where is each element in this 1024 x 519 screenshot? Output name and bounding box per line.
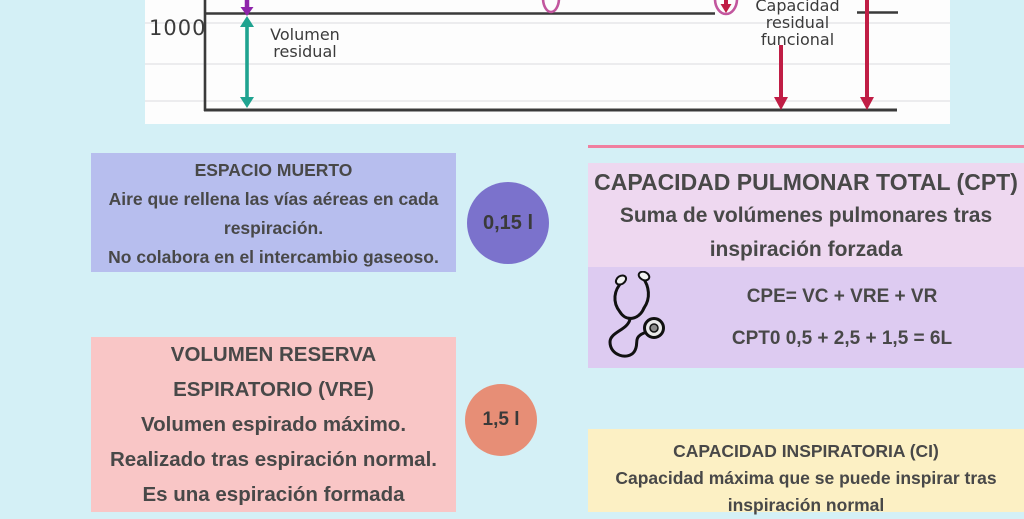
cpt-card-title-section: CAPACIDAD PULMONAR TOTAL (CPT) Suma de v… xyxy=(588,163,1024,267)
espacio-muerto-line3: No colabora en el intercambio gaseoso. xyxy=(91,243,456,272)
cpt-top-divider xyxy=(588,145,1024,148)
breath-loop-icon xyxy=(543,0,559,12)
volumen-residual-line1: Volumen xyxy=(255,26,355,43)
cpt-formula-symbolic: CPE= VC + VRE + VR xyxy=(680,286,1004,308)
vre-line2: Realizado tras espiración normal. xyxy=(91,442,456,477)
cpt-title: CAPACIDAD PULMONAR TOTAL (CPT) xyxy=(588,165,1024,199)
spirogram-panel: 1000 Volumen residual Capacidad residual… xyxy=(145,0,950,124)
cpt-formulas: CPE= VC + VRE + VR CPT0 0,5 + 2,5 + 1,5 … xyxy=(680,286,1024,350)
capacidad-line1: Capacidad xyxy=(730,0,865,14)
ci-title: CAPACIDAD INSPIRATORIA (CI) xyxy=(588,438,1024,465)
espacio-muerto-card: ESPACIO MUERTO Aire que rellena las vías… xyxy=(91,153,456,272)
ci-card: CAPACIDAD INSPIRATORIA (CI) Capacidad má… xyxy=(588,429,1024,512)
espacio-muerto-line2: respiración. xyxy=(91,214,456,243)
vre-title-line1: VOLUMEN RESERVA xyxy=(91,337,456,372)
vre-value-badge: 1,5 l xyxy=(465,384,537,456)
teal-double-arrow xyxy=(240,16,254,108)
ci-line2: inspiración normal xyxy=(588,492,1024,519)
cpt-card-formula-section: CPE= VC + VRE + VR CPT0 0,5 + 2,5 + 1,5 … xyxy=(588,267,1024,368)
espacio-muerto-title: ESPACIO MUERTO xyxy=(91,156,456,185)
vre-line3: Es una espiración formada xyxy=(91,477,456,512)
vre-card: VOLUMEN RESERVA ESPIRATORIO (VRE) Volume… xyxy=(91,337,456,512)
crimson-arrow-short xyxy=(774,45,788,110)
espacio-muerto-value-badge: 0,15 l xyxy=(467,182,549,264)
capacidad-residual-funcional-label: Capacidad residual funcional xyxy=(730,0,865,48)
vre-line1: Volumen espirado máximo. xyxy=(91,407,456,442)
ci-line1: Capacidad máxima que se puede inspirar t… xyxy=(588,465,1024,492)
vre-title-line2: ESPIRATORIO (VRE) xyxy=(91,372,456,407)
cpt-formula-numeric: CPT0 0,5 + 2,5 + 1,5 = 6L xyxy=(680,328,1004,350)
espacio-muerto-value: 0,15 l xyxy=(483,212,533,235)
infographic-lung-volumes: { "colors": { "page_bg": "#d4f0f6", "pan… xyxy=(0,0,1024,512)
cpt-subtitle-line2: inspiración forzada xyxy=(588,233,1024,267)
volumen-residual-label: Volumen residual xyxy=(255,26,355,60)
y-axis-tick-1000: 1000 xyxy=(149,16,199,40)
cpt-subtitle-line1: Suma de volúmenes pulmonares tras xyxy=(588,199,1024,233)
capacidad-line2: residual funcional xyxy=(730,14,865,48)
espacio-muerto-line1: Aire que rellena las vías aéreas en cada xyxy=(91,185,456,214)
vre-value: 1,5 l xyxy=(483,409,520,431)
stethoscope-icon xyxy=(588,271,680,365)
volumen-residual-line2: residual xyxy=(255,43,355,60)
